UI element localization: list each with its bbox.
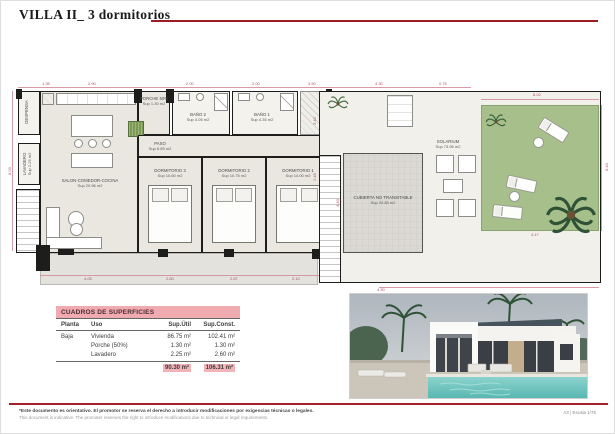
bed bbox=[148, 185, 192, 243]
page-title: VILLA II_ 3 dormitorios bbox=[19, 7, 170, 23]
outdoor-table bbox=[436, 199, 454, 217]
dimension-line bbox=[601, 105, 602, 231]
table-row: Baja Vivienda 86.75 m² 102.41 m² bbox=[56, 331, 240, 342]
dimension-label: 1.35 bbox=[42, 82, 50, 86]
disclaimer-es: *Este documento es orientativo. El promo… bbox=[19, 408, 439, 415]
bath-sink bbox=[238, 93, 250, 101]
kitchen-island bbox=[71, 115, 113, 137]
dining-table bbox=[71, 153, 113, 168]
dimension-label: 8.03 bbox=[8, 167, 12, 175]
dimension-label: 4.05 bbox=[84, 277, 92, 281]
bed bbox=[212, 185, 256, 243]
total-const: 106.31 m² bbox=[204, 364, 235, 372]
palm-tree-icon bbox=[327, 93, 349, 115]
wall-segment bbox=[36, 245, 50, 271]
dimension-line bbox=[481, 99, 599, 100]
footer-rule bbox=[9, 403, 608, 405]
outdoor-table bbox=[458, 199, 476, 217]
bath-sink bbox=[178, 93, 190, 101]
dimension-label: 2.00 bbox=[186, 82, 194, 86]
dimension-line bbox=[18, 87, 330, 88]
coffee-table bbox=[70, 223, 83, 236]
total-util: 90.30 m² bbox=[163, 364, 191, 372]
col-uso: Uso bbox=[91, 322, 149, 328]
outdoor-table bbox=[443, 179, 463, 193]
stool bbox=[88, 139, 97, 148]
dimension-label: 4.30 bbox=[375, 82, 383, 86]
side-table bbox=[509, 191, 520, 202]
side-table bbox=[533, 137, 544, 148]
dimension-label: 2.45 bbox=[313, 173, 317, 181]
palm-tree-icon bbox=[485, 111, 507, 133]
title-rule bbox=[151, 20, 598, 22]
outdoor-table bbox=[458, 155, 476, 173]
wardrobe bbox=[42, 93, 54, 105]
dimension-line bbox=[321, 87, 471, 88]
stool bbox=[74, 139, 83, 148]
dimension-label: 2.90 bbox=[88, 82, 96, 86]
dimension-label: 0.75 bbox=[439, 82, 447, 86]
dimension-label: 4.17 bbox=[531, 233, 539, 237]
stairs bbox=[16, 189, 40, 253]
sofa bbox=[46, 237, 102, 249]
dimension-label: 2.00 bbox=[252, 82, 260, 86]
wall-segment bbox=[158, 249, 168, 257]
footer-disclaimer: *Este documento es orientativo. El promo… bbox=[19, 408, 439, 422]
dimension-label: 4.40 bbox=[336, 199, 340, 207]
terrace-slab bbox=[40, 253, 318, 285]
wall-segment bbox=[16, 89, 22, 99]
dimension-label: 2.80 bbox=[166, 277, 174, 281]
table-row: Porche (50%) 1.30 m² 1.30 m² bbox=[56, 342, 240, 351]
roof-stairs bbox=[319, 155, 341, 283]
palm-tree-icon bbox=[545, 189, 597, 241]
col-sup-const: Sup.Const. bbox=[191, 322, 235, 328]
roof-plan: CUBIERTA NO TRANSITABLE Sup 20.85 m2 SOL… bbox=[319, 85, 603, 293]
outdoor-table bbox=[436, 155, 454, 173]
outdoor-table-set bbox=[387, 95, 413, 127]
room-paso bbox=[138, 135, 330, 157]
col-planta: Planta bbox=[61, 322, 91, 328]
dimension-label: 2.10 bbox=[292, 277, 300, 281]
bath-toilet bbox=[256, 93, 264, 101]
stool bbox=[102, 139, 111, 148]
dimension-label: 3.50 bbox=[308, 82, 316, 86]
villa-render bbox=[349, 293, 588, 399]
dimension-line bbox=[379, 287, 599, 288]
cubierta-area bbox=[343, 153, 423, 253]
ground-floor-plan: DESPENSA LAVADERO Sup 2.25 m2 SALON-COME… bbox=[16, 85, 334, 293]
bath-toilet bbox=[196, 93, 204, 101]
bed bbox=[276, 185, 322, 243]
plan-sheet-page: VILLA II_ 3 dormitorios DESPENSA LAVADER… bbox=[0, 0, 615, 434]
table-total-row: 90.30 m² 106.31 m² bbox=[56, 361, 240, 373]
wall-segment bbox=[58, 249, 74, 255]
dimension-label: 3.40 bbox=[313, 117, 317, 125]
room-lavadero bbox=[18, 143, 40, 185]
kitchen-counter bbox=[56, 93, 136, 105]
bath-shower bbox=[214, 93, 228, 111]
col-sup-util: Sup.Útil bbox=[149, 322, 191, 328]
surfaces-table-title: CUADROS DE SUPERFICIES bbox=[56, 306, 240, 318]
dimension-line bbox=[12, 91, 13, 251]
dimension-label: 8.02 bbox=[533, 93, 541, 97]
bath-shower bbox=[280, 93, 294, 111]
disclaimer-en: This document is indicative. The promote… bbox=[19, 415, 439, 422]
surfaces-table-header: Planta Uso Sup.Útil Sup.Const. bbox=[56, 318, 240, 331]
dimension-label: 2.87 bbox=[230, 277, 238, 281]
sheet-scale-label: A3 | Escala 1/75 bbox=[563, 410, 596, 415]
wall-segment bbox=[166, 89, 174, 103]
dimension-label: 4.30 bbox=[377, 288, 385, 292]
table-row: Lavadero 2.25 m² 2.60 m² bbox=[56, 351, 240, 360]
wall-segment bbox=[224, 249, 234, 257]
wall-segment bbox=[134, 89, 142, 103]
surfaces-table: CUADROS DE SUPERFICIES Planta Uso Sup.Út… bbox=[56, 306, 240, 373]
dimension-label: 8.40 bbox=[605, 163, 609, 171]
